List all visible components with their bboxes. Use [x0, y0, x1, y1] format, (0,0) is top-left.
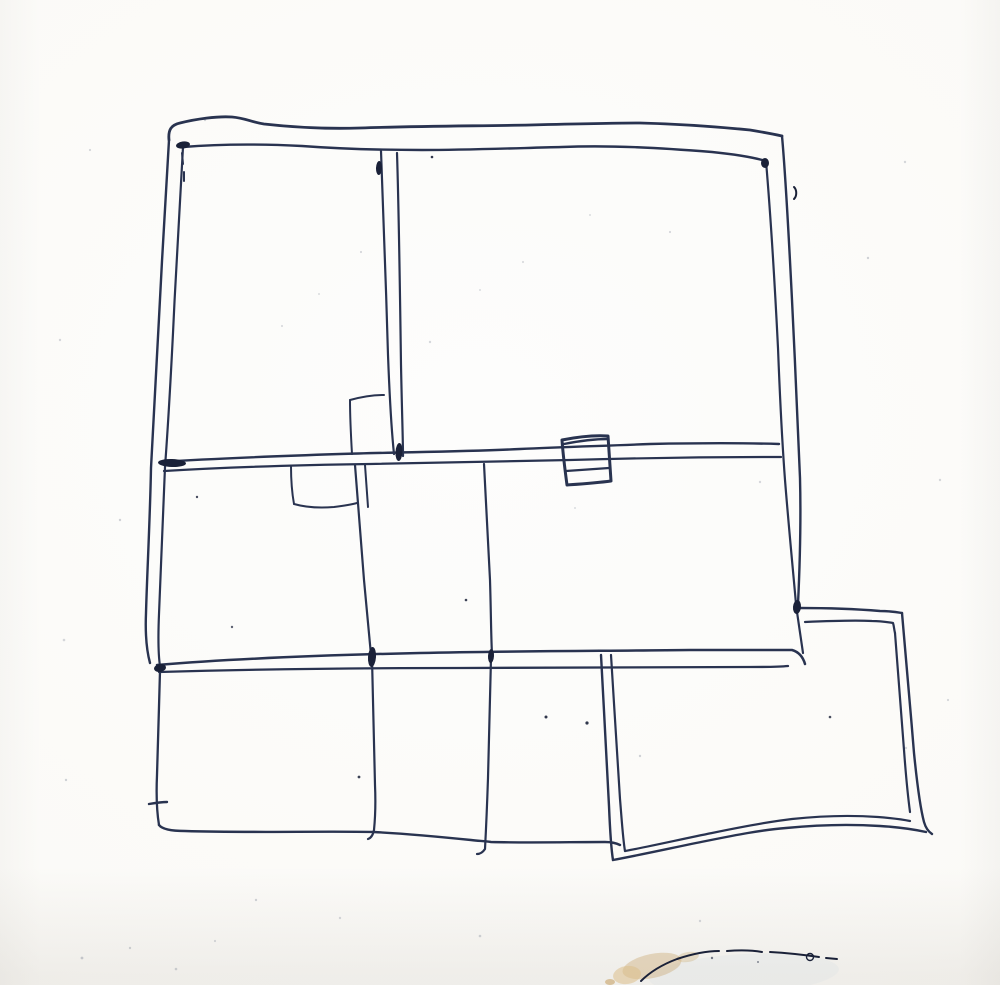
stroke-annex-bottom-outer: [613, 825, 926, 860]
stroke-middle-wall-upper: [160, 443, 779, 462]
stroke-inner-top-wall: [183, 145, 766, 161]
paper-speckle: [214, 940, 216, 942]
stroke-outer-top-wall: [169, 117, 782, 140]
stroke-annex-right-inner: [895, 633, 910, 812]
stroke-midband-partition-a-double: [365, 465, 368, 507]
stroke-annex-top-inner: [805, 621, 895, 633]
stroke-extension-left-tick: [149, 802, 167, 804]
paper-speckle: [81, 957, 84, 960]
stroke-stray-pen-tick: [794, 187, 796, 199]
paper-sheet: [0, 0, 1000, 985]
paper-speckle: [119, 519, 121, 521]
ink-blob: [761, 158, 769, 168]
ink-fleck: [431, 156, 434, 159]
ink-fleck: [545, 716, 548, 719]
stroke-midband-partition-b: [484, 464, 492, 654]
stroke-lower-partition-b: [477, 658, 491, 854]
ink-blobs-layer: [153, 141, 801, 673]
stroke-outer-left-wall: [146, 140, 169, 663]
stroke-annex-bottom-inner: [625, 816, 910, 851]
ink-blob: [792, 600, 801, 615]
paper-speckle: [59, 339, 61, 341]
ink-blob: [395, 443, 403, 461]
paper-speckle: [867, 257, 869, 259]
paper-speckle: [89, 149, 91, 151]
ink-fleck: [231, 626, 233, 628]
paper-speckle: [63, 639, 66, 642]
stroke-annex-left-inner: [611, 655, 625, 851]
paper-speckle: [669, 231, 671, 233]
paper-speckle: [479, 289, 481, 291]
paper-speckle: [65, 779, 67, 781]
stroke-extension-bottom-edge: [159, 825, 620, 845]
stroke-upper-notch-left: [350, 400, 352, 454]
stroke-lower-partition-a: [368, 658, 375, 839]
paper-speckle: [639, 755, 641, 757]
paper-speckle: [522, 261, 524, 263]
smudge-arc: [826, 958, 837, 959]
paper-speckle: [255, 899, 257, 901]
stroke-midwall-box-midline: [566, 468, 609, 471]
paper-speckle: [175, 968, 178, 971]
paper-speckle: [129, 947, 131, 949]
paper-speckle: [947, 699, 949, 701]
paper-speckle: [479, 935, 482, 938]
paper-speckle: [759, 481, 761, 483]
ink-blob: [176, 141, 191, 150]
stroke-bottom-wall-upper: [157, 650, 805, 665]
smudge-layer: [605, 948, 840, 985]
paper-speckle: [905, 747, 907, 749]
pen-strokes-layer: [146, 117, 932, 860]
smudge-arc: [727, 950, 762, 952]
ink-fleck: [585, 721, 588, 724]
paper-speckle: [360, 251, 362, 253]
smudge-blot: [605, 979, 615, 985]
stroke-inner-left-wall: [158, 147, 183, 666]
floor-plan-sketch: [0, 0, 1000, 985]
stroke-lower-notch-left: [291, 466, 294, 504]
ink-blob: [367, 647, 376, 668]
paper-speckle: [699, 920, 701, 922]
stroke-bottom-wall-lower: [159, 666, 788, 672]
paper-speckle: [429, 341, 431, 343]
stroke-middle-wall-lower: [164, 457, 781, 471]
paper-speckle: [318, 293, 320, 295]
stroke-midband-partition-a: [355, 465, 371, 655]
stroke-upper-partition-right-line: [397, 153, 403, 456]
paper-speckle: [281, 325, 283, 327]
ink-fleck: [829, 716, 832, 719]
paper-speckle: [589, 214, 591, 216]
stroke-lower-notch-bottom: [294, 503, 357, 508]
stroke-upper-partition-left-line: [381, 151, 394, 454]
ink-fleck: [465, 599, 468, 602]
paper-speckle: [574, 507, 576, 509]
stroke-annex-top-outer: [799, 608, 902, 613]
stroke-inner-right-wall: [766, 161, 796, 604]
paper-speckle: [339, 917, 341, 919]
ink-fleck: [196, 496, 198, 498]
paper-speckle: [904, 161, 906, 163]
stroke-upper-notch-top: [350, 395, 384, 400]
stroke-outer-right-wall: [782, 136, 800, 604]
ink-fleck: [358, 776, 361, 779]
stroke-annex-left-outer: [601, 655, 613, 860]
paper-speckle: [939, 479, 941, 481]
stroke-right-wall-below-annex-junction: [797, 612, 803, 653]
stroke-annex-right-outer: [902, 613, 932, 834]
